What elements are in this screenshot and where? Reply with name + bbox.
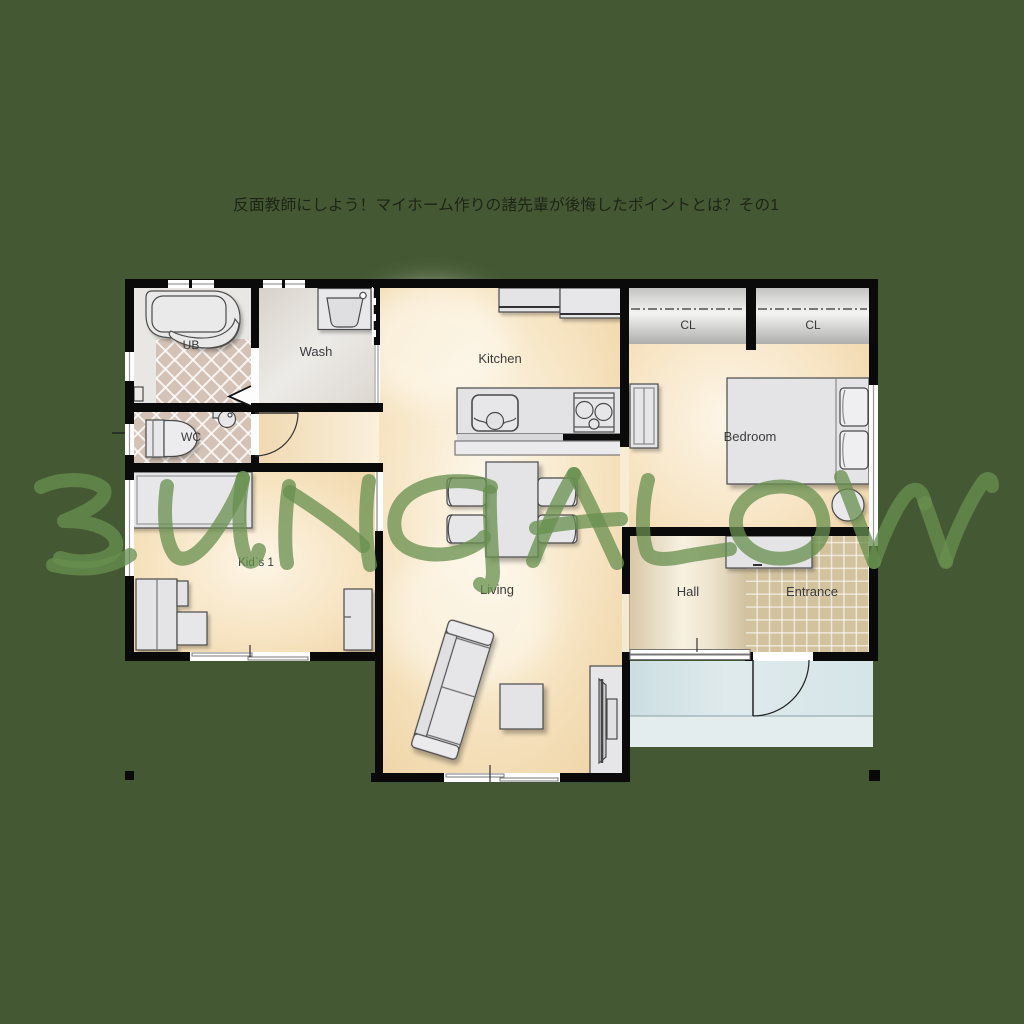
svg-text:Bedroom: Bedroom bbox=[724, 429, 777, 444]
svg-text:Entrance: Entrance bbox=[786, 584, 838, 599]
svg-text:Wash: Wash bbox=[300, 344, 333, 359]
svg-text:CL: CL bbox=[805, 318, 821, 332]
svg-text:Kitchen: Kitchen bbox=[478, 351, 521, 366]
svg-text:UB: UB bbox=[183, 338, 200, 352]
svg-text:Hall: Hall bbox=[677, 584, 700, 599]
svg-text:CL: CL bbox=[680, 318, 696, 332]
svg-text:WC: WC bbox=[181, 430, 201, 444]
svg-text:反面教師にしよう！マイホーム作りの諸先輩が後悔したポイントと: 反面教師にしよう！マイホーム作りの諸先輩が後悔したポイントとは？その1 bbox=[233, 196, 779, 214]
